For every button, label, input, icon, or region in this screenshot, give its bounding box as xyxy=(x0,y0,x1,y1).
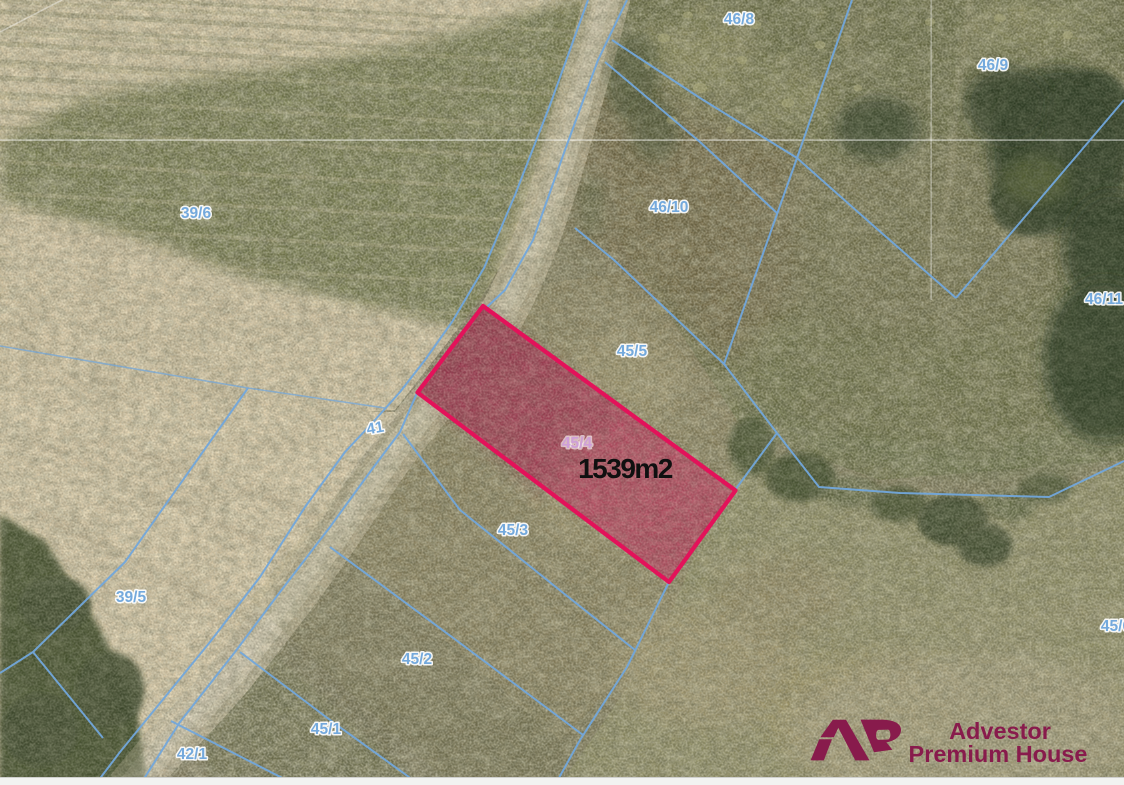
svg-text:46/8: 46/8 xyxy=(724,11,755,28)
svg-text:45/4: 45/4 xyxy=(562,435,593,452)
svg-text:39/5: 39/5 xyxy=(116,589,147,606)
svg-text:41: 41 xyxy=(365,419,385,439)
svg-text:39/6: 39/6 xyxy=(181,205,212,222)
svg-text:42/1: 42/1 xyxy=(177,746,208,763)
svg-text:1539m2: 1539m2 xyxy=(578,453,673,484)
svg-text:45/3: 45/3 xyxy=(498,522,529,539)
svg-text:46/10: 46/10 xyxy=(650,199,689,216)
svg-text:Premium House: Premium House xyxy=(909,741,1088,767)
svg-text:45/5: 45/5 xyxy=(617,343,648,360)
svg-text:45/1: 45/1 xyxy=(311,721,342,738)
svg-text:46/9: 46/9 xyxy=(978,57,1009,74)
svg-text:46/11: 46/11 xyxy=(1085,291,1123,308)
svg-text:45/2: 45/2 xyxy=(402,651,432,668)
svg-text:45/6: 45/6 xyxy=(1101,618,1124,635)
